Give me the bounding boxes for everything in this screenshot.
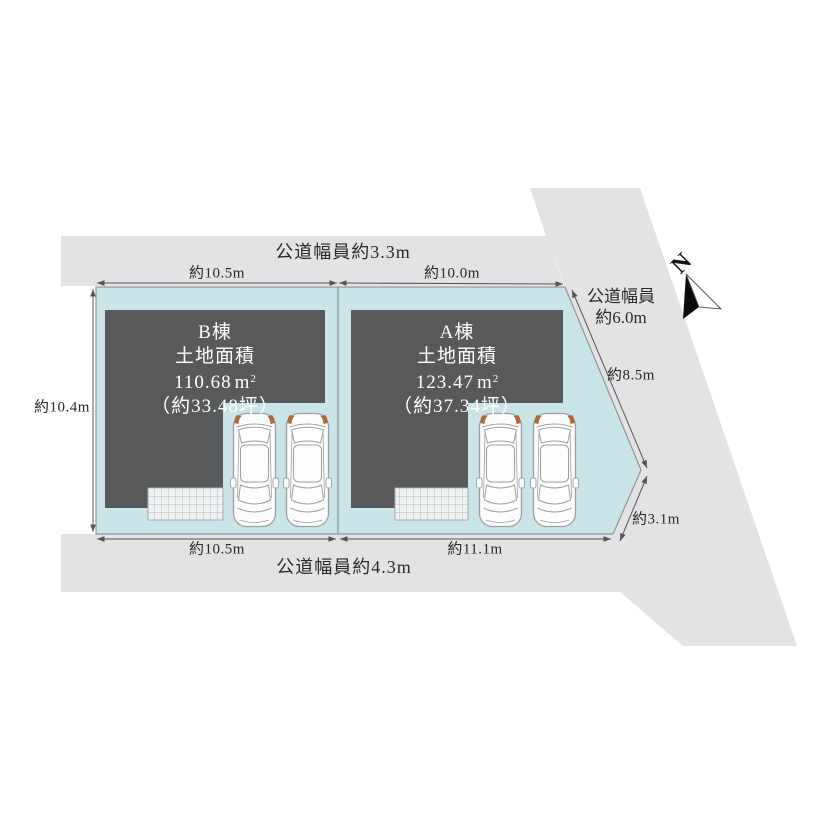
lot-b-label: B棟 土地面積 110.68m2 （約33.48坪） — [105, 321, 325, 418]
terrace-a — [395, 488, 468, 520]
car-a2 — [531, 414, 579, 527]
lot-a-name: A棟 — [351, 321, 563, 345]
dim-label-top-a: 約10.0m — [424, 262, 480, 283]
dim-label-right-upper: 約8.5m — [607, 364, 655, 385]
lot-b-area-unit: m — [235, 372, 251, 393]
terrace-b — [148, 488, 223, 520]
road-right-label: 公道幅員 約6.0m — [587, 286, 655, 328]
lot-a-area-unit-sup: 2 — [493, 373, 499, 385]
dim-label-left-b: 約10.4m — [34, 396, 90, 417]
plot-plan-drawing: N — [0, 0, 840, 840]
road-right-label-line1: 公道幅員 — [587, 286, 655, 307]
lot-b-area-title: 土地面積 — [105, 345, 325, 369]
lot-b-area: 110.68m2 — [105, 368, 325, 395]
lot-b-name: B棟 — [105, 321, 325, 345]
lot-b-area-unit-sup: 2 — [250, 373, 256, 385]
lot-a-area-title: 土地面積 — [351, 345, 563, 369]
lot-a-tsubo: （約37.34坪） — [351, 395, 563, 419]
lot-b-tsubo: （約33.48坪） — [105, 395, 325, 419]
dim-label-right-lower: 約3.1m — [632, 508, 680, 529]
compass-north-label: N — [666, 248, 697, 279]
lot-a-label: A棟 土地面積 123.47m2 （約37.34坪） — [351, 321, 563, 418]
lot-a-area-value: 123.47 — [416, 372, 474, 393]
plot-plan-canvas: N 公道幅員約3.3m 公道幅員 約6.0m 公道幅員約4.3m 約10.5m … — [0, 0, 840, 840]
dim-label-bottom-b: 約10.5m — [189, 538, 245, 559]
lot-a-area-unit: m — [477, 372, 493, 393]
dim-label-top-b: 約10.5m — [189, 262, 245, 283]
lot-b-area-value: 110.68 — [174, 372, 232, 393]
car-a1 — [477, 414, 525, 527]
road-top-label: 公道幅員約3.3m — [275, 238, 411, 264]
car-b1 — [231, 414, 279, 527]
lot-a-area: 123.47m2 — [351, 368, 563, 395]
road-bottom-label: 公道幅員約4.3m — [276, 553, 412, 579]
car-b2 — [284, 414, 332, 527]
dim-label-bottom-a: 約11.1m — [447, 538, 502, 559]
road-right-label-line2: 約6.0m — [587, 307, 655, 328]
